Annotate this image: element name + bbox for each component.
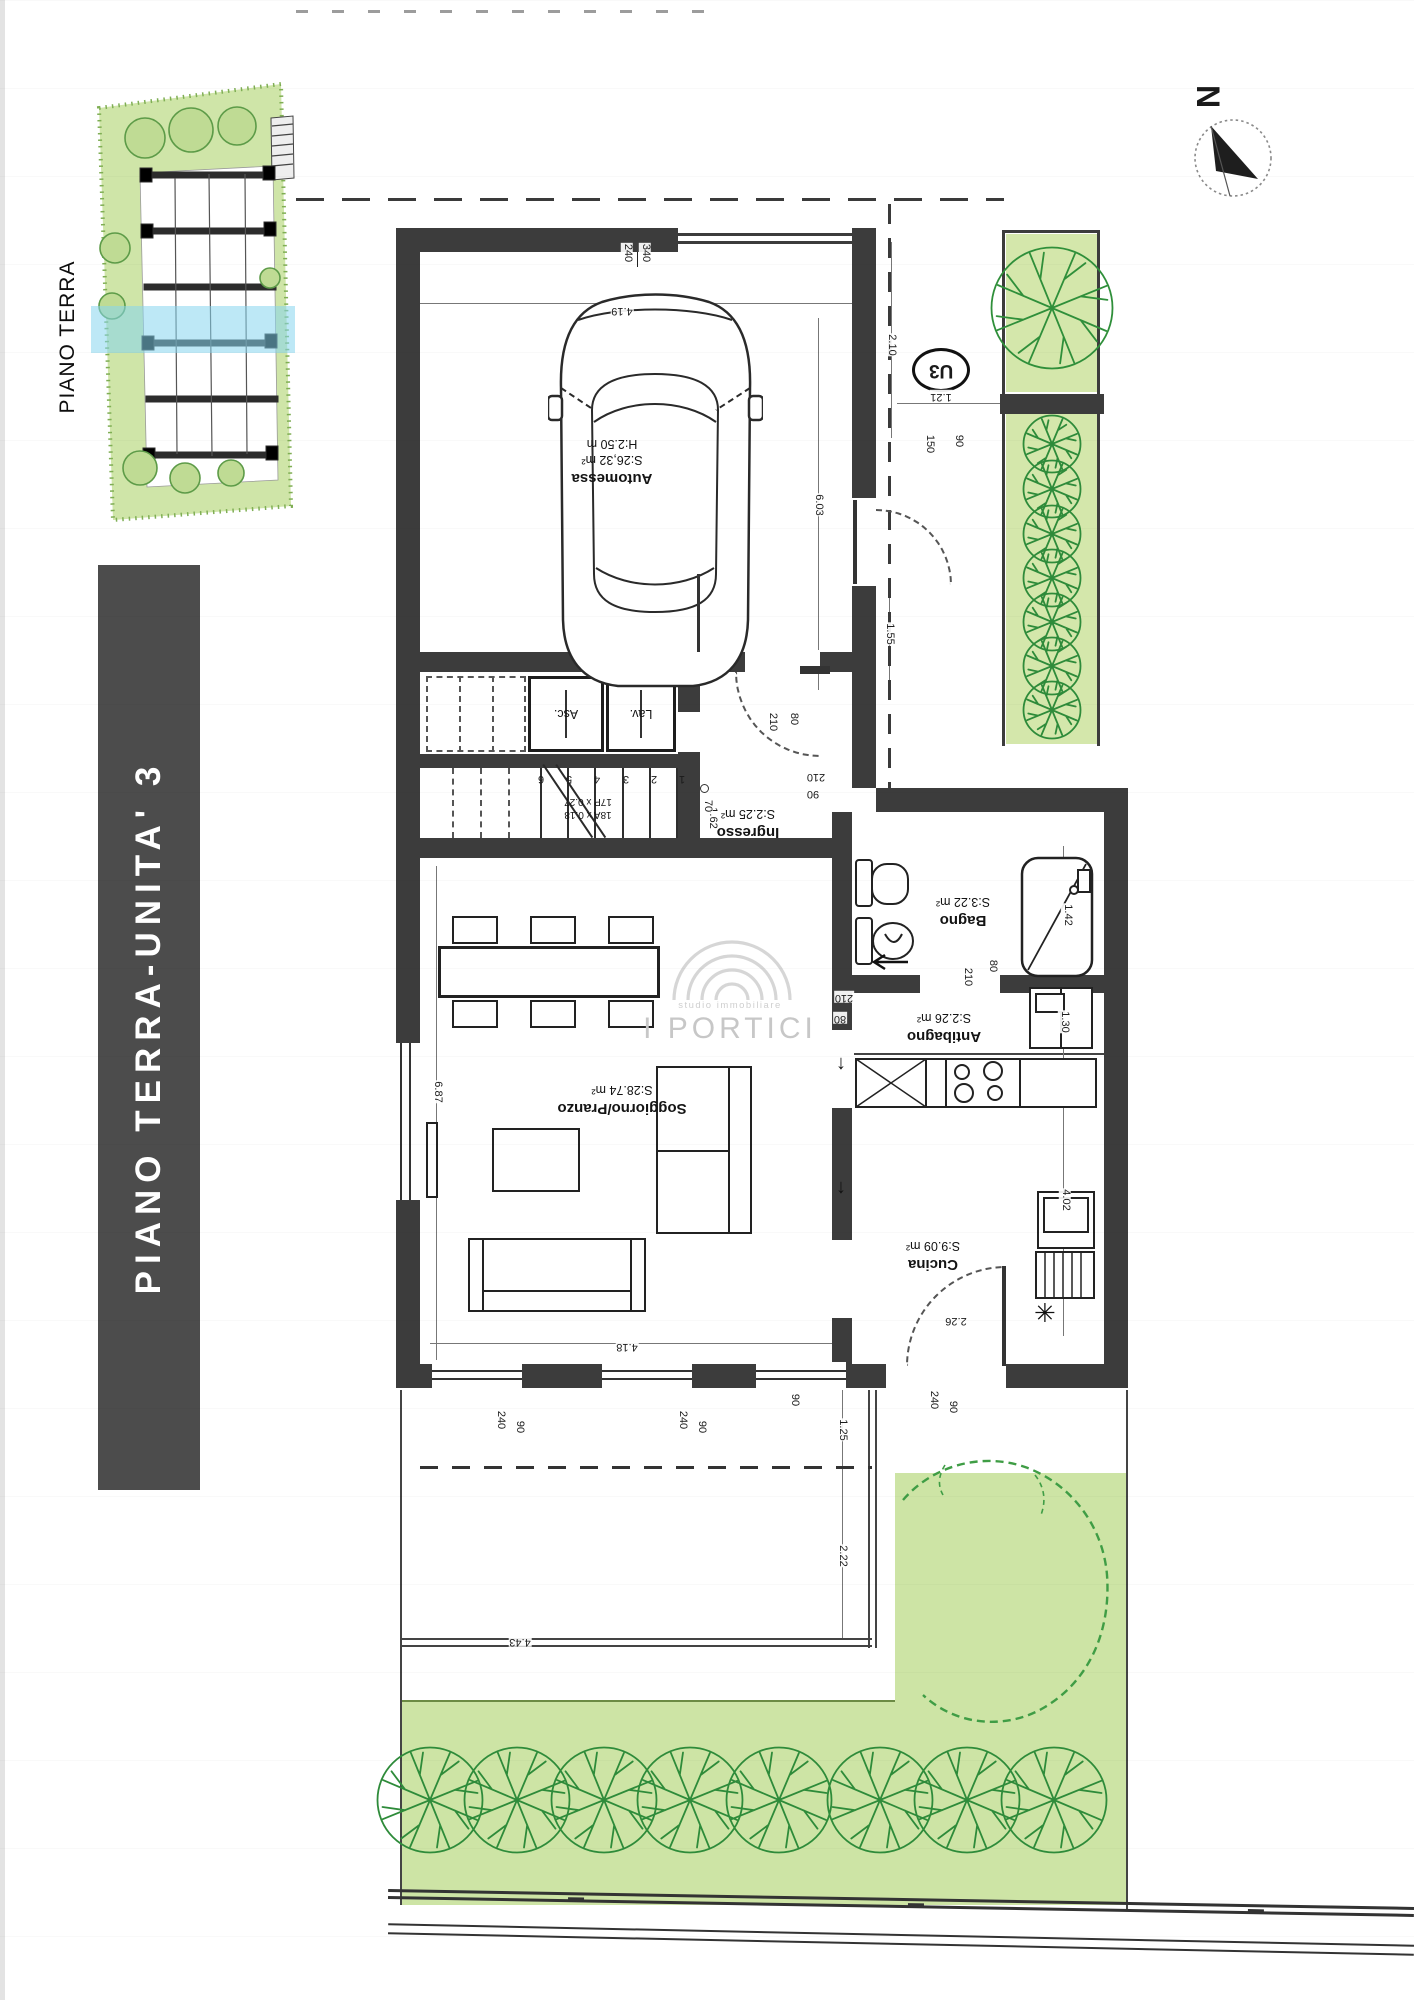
staircase <box>420 768 678 838</box>
terrace-bottom-edge <box>400 1638 872 1640</box>
dimension-label: 1.21 <box>929 390 952 402</box>
title-banner-label: PIANO TERRA-UNITA' 3 <box>129 587 169 1467</box>
dimension-label: 1.42 <box>1061 903 1073 926</box>
window-sill-board <box>426 1122 438 1198</box>
window-opening <box>432 1362 522 1390</box>
dim-line <box>436 866 437 1360</box>
garden-shrub <box>725 1746 833 1859</box>
property-dashed-line-top <box>296 198 1004 201</box>
compass-icon <box>1178 100 1288 210</box>
dimension-label: 240 <box>927 1390 939 1410</box>
inset-highlight-band <box>91 306 295 353</box>
stair-circle-marker <box>700 784 709 793</box>
stair-step-number: 4 <box>594 773 600 785</box>
dimension-label: 80 <box>986 959 998 973</box>
dining-chair <box>530 916 576 944</box>
fence-tick <box>568 1897 584 1901</box>
unit-badge-label: U3 <box>929 359 953 381</box>
stair-step-number: 3 <box>623 773 629 785</box>
terrace-bottom-edge2 <box>400 1645 872 1647</box>
inset-title: PIANO TERRA <box>56 261 80 414</box>
stair-riser-dashed <box>508 768 510 838</box>
sofa <box>468 1238 646 1312</box>
down-arrow-icon: ↓ <box>836 1052 846 1075</box>
dimension-label: 240 <box>676 1410 688 1430</box>
dining-chair <box>608 1000 654 1028</box>
dimension-label: 90 <box>946 1400 958 1414</box>
dim-line <box>897 403 1001 404</box>
dimension-label: 90 <box>952 434 964 448</box>
dimension-label: 4.43 <box>508 1635 531 1647</box>
entrance-door-swing <box>876 509 952 585</box>
dimension-label: 1.55 <box>883 622 895 645</box>
dining-chair <box>452 916 498 944</box>
dimension-label: 150 <box>923 434 935 454</box>
stair-door-leaf <box>697 574 700 652</box>
kitchen-door-opening <box>886 1362 1006 1390</box>
rug <box>492 1128 580 1192</box>
stair-step-number: 2 <box>651 773 657 785</box>
stair-riser-dashed <box>452 768 454 838</box>
terrace-right-edge2 <box>875 1390 877 1648</box>
understair-divider <box>459 676 461 752</box>
understair-divider <box>492 676 494 752</box>
dimension-label: 340 <box>639 243 651 263</box>
terrace-right-edge <box>868 1390 870 1648</box>
dimension-label: 4.19 <box>610 304 633 316</box>
dining-chair <box>452 1000 498 1028</box>
sofa-armrest <box>630 1240 632 1310</box>
dimension-label: 1.30 <box>1058 1010 1070 1033</box>
dimension-label: 80 <box>833 1012 847 1024</box>
top-tick-marks <box>296 10 708 13</box>
stair-riser-dashed <box>480 768 482 838</box>
stair-step-number: 6 <box>538 773 544 785</box>
walkway-dashed-line <box>888 204 891 788</box>
fence-line-lower <box>388 1923 1414 1955</box>
dimension-label: 240 <box>494 1410 506 1430</box>
dining-chair <box>608 916 654 944</box>
garage-door-line <box>678 233 854 236</box>
wall-notch <box>876 788 1128 812</box>
floor-plan-page: PIANO TERRA PIANO TERRA-UNITA' 3 N <box>0 0 1414 2000</box>
dining-chair <box>530 1000 576 1028</box>
sofa-back-line <box>482 1290 632 1292</box>
north-label: N <box>1189 85 1226 108</box>
window-sill <box>756 1378 846 1380</box>
dimension-label: 210 <box>834 991 854 1003</box>
hedge-curve <box>885 1445 1130 1825</box>
page-edge <box>0 0 5 2000</box>
window-opening <box>602 1362 692 1390</box>
dimension-label: 6.87 <box>431 1080 443 1103</box>
planter-divider-wall <box>1000 394 1104 414</box>
hall-door-stub <box>800 666 830 674</box>
fence-tick <box>1248 1909 1264 1913</box>
wall-under-asc <box>420 754 678 768</box>
dimension-label: 210 <box>806 770 826 782</box>
room-label-antibagno: Antibagno S:2.26 m² <box>907 1010 981 1046</box>
dimension-label: 210 <box>961 967 973 987</box>
stair-step-number: 5 <box>566 773 572 785</box>
wall-top-garage <box>396 228 678 252</box>
overhang-dashed-line <box>420 1466 872 1469</box>
fence-tick <box>908 1903 924 1907</box>
dimension-label: 4.02 <box>1059 1188 1071 1211</box>
elevator-label: Asc. <box>554 706 578 722</box>
planter-shrub <box>1022 680 1082 745</box>
window-opening <box>756 1362 846 1390</box>
down-arrow-icon: ↓ <box>836 1176 846 1199</box>
window-sill <box>432 1378 522 1380</box>
dimension-label: 90 <box>695 1420 707 1434</box>
plant-symbol-icon: ✳ <box>1034 1298 1056 1329</box>
stair-dimensions-label: 18A x 0.18 17P x 0.27 <box>564 795 612 821</box>
room-label-soggiorno: Soggiorno/Pranzo S:28.74 m² <box>557 1082 686 1118</box>
garage-door-line2 <box>678 241 854 244</box>
dimension-label: 90 <box>513 1420 525 1434</box>
understair-storage <box>426 676 526 752</box>
dimension-label: 2.26 <box>944 1314 967 1326</box>
dimension-label: 90 <box>788 1393 800 1407</box>
watermark-title: I PORTICI <box>628 1012 832 1046</box>
laundry-label: Lav. <box>630 706 653 722</box>
wall-right-lower <box>1104 788 1128 1388</box>
wall-left <box>396 228 420 1388</box>
planter-top-line <box>1002 230 1100 233</box>
dimension-label: 2.10 <box>885 333 897 356</box>
chaise-cushion-line <box>658 1150 730 1152</box>
window-sill <box>602 1378 692 1380</box>
dining-table <box>438 946 660 998</box>
window-sill <box>432 1370 522 1372</box>
kitchen-door-leaf <box>1002 1266 1006 1366</box>
entrance-door-leaf <box>853 500 857 584</box>
dimension-label: 70 <box>701 799 713 813</box>
car-icon <box>548 290 763 695</box>
cucina-door-opening <box>830 1240 854 1318</box>
dimension-label: 90 <box>806 787 820 799</box>
dimension-label: 6.03 <box>812 493 824 516</box>
room-label-cucina: Cucina S:9.09 m² <box>906 1238 960 1274</box>
stair-step-number: 1 <box>679 773 685 785</box>
sofa-armrest <box>482 1240 484 1310</box>
site-plan-inset <box>85 78 303 526</box>
room-label-automessa: Automessa S:26,32 m² H:2.50 m <box>572 436 653 488</box>
unit-badge: U3 <box>912 348 970 392</box>
living-window-glass2 <box>409 1043 411 1200</box>
living-window-glass <box>400 1043 402 1200</box>
dimension-label: 80 <box>787 712 799 726</box>
dimension-label: 240 <box>621 243 633 263</box>
room-label-ingresso: Ingresso S:2.25 m² <box>717 806 780 842</box>
dimension-label: 1.25 <box>836 1418 848 1441</box>
wall-stairs-bottom <box>420 838 852 858</box>
stair-riser <box>676 768 678 838</box>
watermark-subtitle: studio immobiliare <box>628 1000 832 1011</box>
living-window-opening <box>394 1043 422 1200</box>
hall-left-door-opening <box>678 712 700 752</box>
planter-tree <box>990 246 1114 375</box>
window-sill <box>756 1370 846 1372</box>
room-label-bagno: Bagno S:3.22 m² <box>936 894 990 930</box>
wall-hall-left <box>678 672 700 858</box>
dimension-label: 210 <box>766 712 778 732</box>
dimension-label: 2.22 <box>836 1544 848 1567</box>
dimension-label: 4.18 <box>615 1340 638 1352</box>
window-sill <box>602 1370 692 1372</box>
